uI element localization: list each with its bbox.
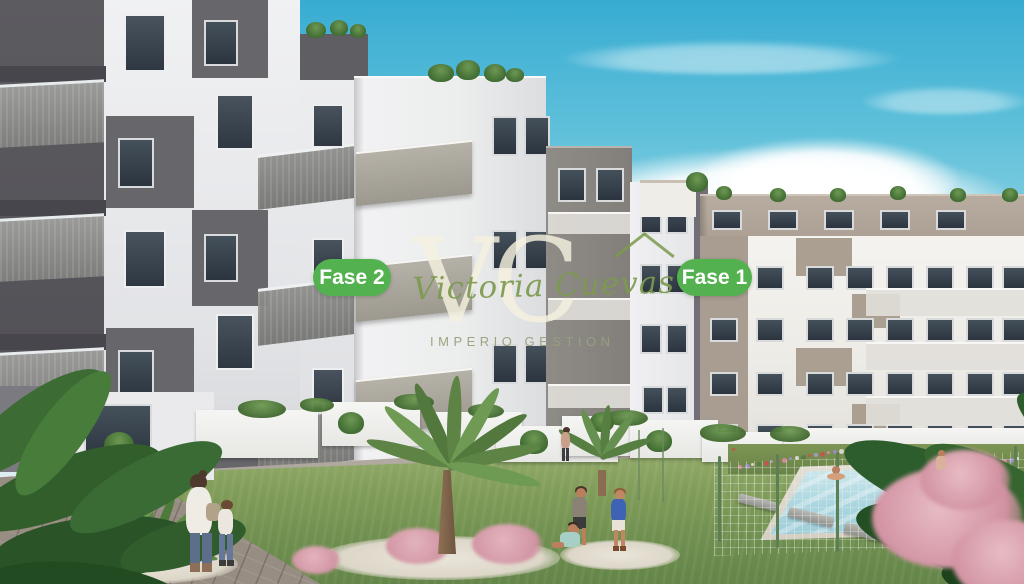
swimmer-shoulders	[827, 473, 845, 480]
woman-boot	[202, 563, 212, 572]
kid-shoe	[620, 546, 626, 551]
child-shoe	[227, 560, 234, 566]
walker-body	[561, 432, 570, 449]
kid-torso	[611, 499, 626, 522]
poolside-body	[936, 456, 946, 470]
kid-leg	[621, 530, 625, 547]
people	[0, 0, 1024, 584]
child-leg	[219, 534, 225, 562]
kid-leg	[582, 528, 586, 545]
kid-shoe	[613, 546, 619, 551]
kid-leg	[614, 530, 618, 547]
woman-leg	[202, 533, 212, 565]
child-shoe	[219, 560, 226, 566]
kid-torso	[572, 497, 587, 519]
child-shirt	[218, 509, 233, 535]
architectural-render-scene: VC Victoria Cuevas IMPERIO GESTION Fase …	[0, 0, 1024, 584]
woman-hair	[199, 470, 207, 478]
fase-2-badge: Fase 2	[313, 259, 391, 296]
woman-leg	[190, 533, 200, 565]
child-leg	[227, 534, 233, 562]
walker-leg	[566, 448, 569, 461]
fase-1-badge: Fase 1	[677, 259, 752, 296]
woman-boot	[190, 563, 200, 572]
kid-leg	[552, 542, 564, 548]
walker-leg	[562, 448, 565, 461]
